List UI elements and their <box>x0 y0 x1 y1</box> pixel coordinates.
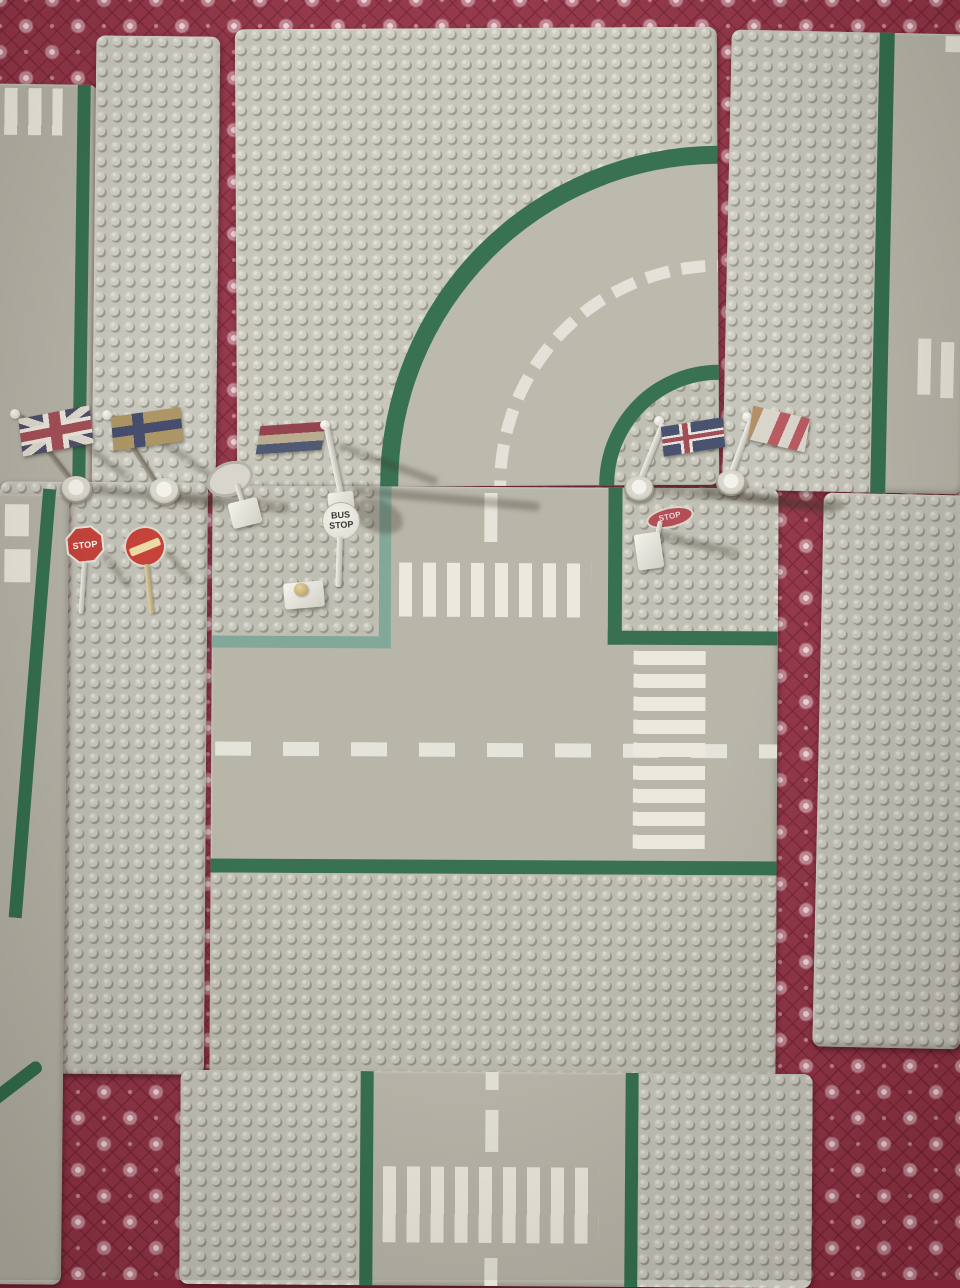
crosswalk-marking <box>917 339 931 395</box>
no-entry-face <box>122 524 168 569</box>
stop-fallen-text: STOP <box>647 505 693 530</box>
crosswalk-marking <box>945 36 960 52</box>
road-edge-line-left <box>359 1071 373 1285</box>
sign-head <box>201 454 258 504</box>
road-curve-line <box>0 1059 44 1142</box>
sidewalk-bottom <box>209 873 776 1081</box>
crosswalk-marking <box>4 88 63 136</box>
plate-sidewalk-strip-right <box>812 493 960 1050</box>
flag-union-jack-angled <box>710 402 810 512</box>
sign-round-blank <box>204 456 284 536</box>
sign-base <box>227 497 262 529</box>
centerline-dash <box>486 1072 499 1090</box>
crosswalk-marking <box>940 342 954 398</box>
sign-base <box>634 531 665 570</box>
gold-round-stud <box>294 583 308 596</box>
flag-base <box>60 476 92 503</box>
plate-road-edge-bottom-left <box>0 493 69 1285</box>
stop-fallen-head: STOP <box>644 502 695 533</box>
flag-base <box>624 476 654 502</box>
flag-nordic-cross <box>98 404 208 514</box>
crosswalk-horizontal-road <box>633 651 706 855</box>
sidewalk-section-right <box>637 1073 812 1288</box>
sign-no-entry <box>122 524 174 616</box>
stop-sign-face: STOP <box>66 526 103 562</box>
crosswalk-marking <box>4 549 30 582</box>
crosswalk-marking <box>383 1166 600 1244</box>
plate-road-crosswalk-bottom <box>179 1070 812 1288</box>
centerline-dash <box>484 1258 497 1286</box>
tile-white-with-stud <box>284 578 328 612</box>
bus-stop-text-line2: STOP <box>323 519 360 531</box>
crosswalk-vertical-road <box>399 563 591 618</box>
stop-sign-outline: STOP <box>64 524 106 565</box>
stop-sign-text: STOP <box>66 526 102 551</box>
sign-pole <box>335 537 343 587</box>
flag-canvas-netherlands <box>256 421 327 454</box>
flag-base <box>716 470 746 496</box>
sign-pole <box>78 562 87 614</box>
flag-canvas-nordic <box>111 407 183 451</box>
flag-base <box>148 478 180 505</box>
flag-canvas-union-jack <box>18 405 93 456</box>
no-entry-bar <box>129 537 162 556</box>
centerline-dash <box>485 1110 498 1152</box>
flag-canvas-union-jack-angled <box>748 406 810 453</box>
sidewalk-section-left <box>179 1070 360 1285</box>
sign-pole <box>144 564 154 614</box>
bus-stop-head: BUS STOP <box>321 501 362 542</box>
sign-stop-fallen: STOP <box>632 503 704 575</box>
sign-stop: STOP <box>66 526 116 618</box>
sign-bus-stop: BUS STOP <box>320 498 380 593</box>
